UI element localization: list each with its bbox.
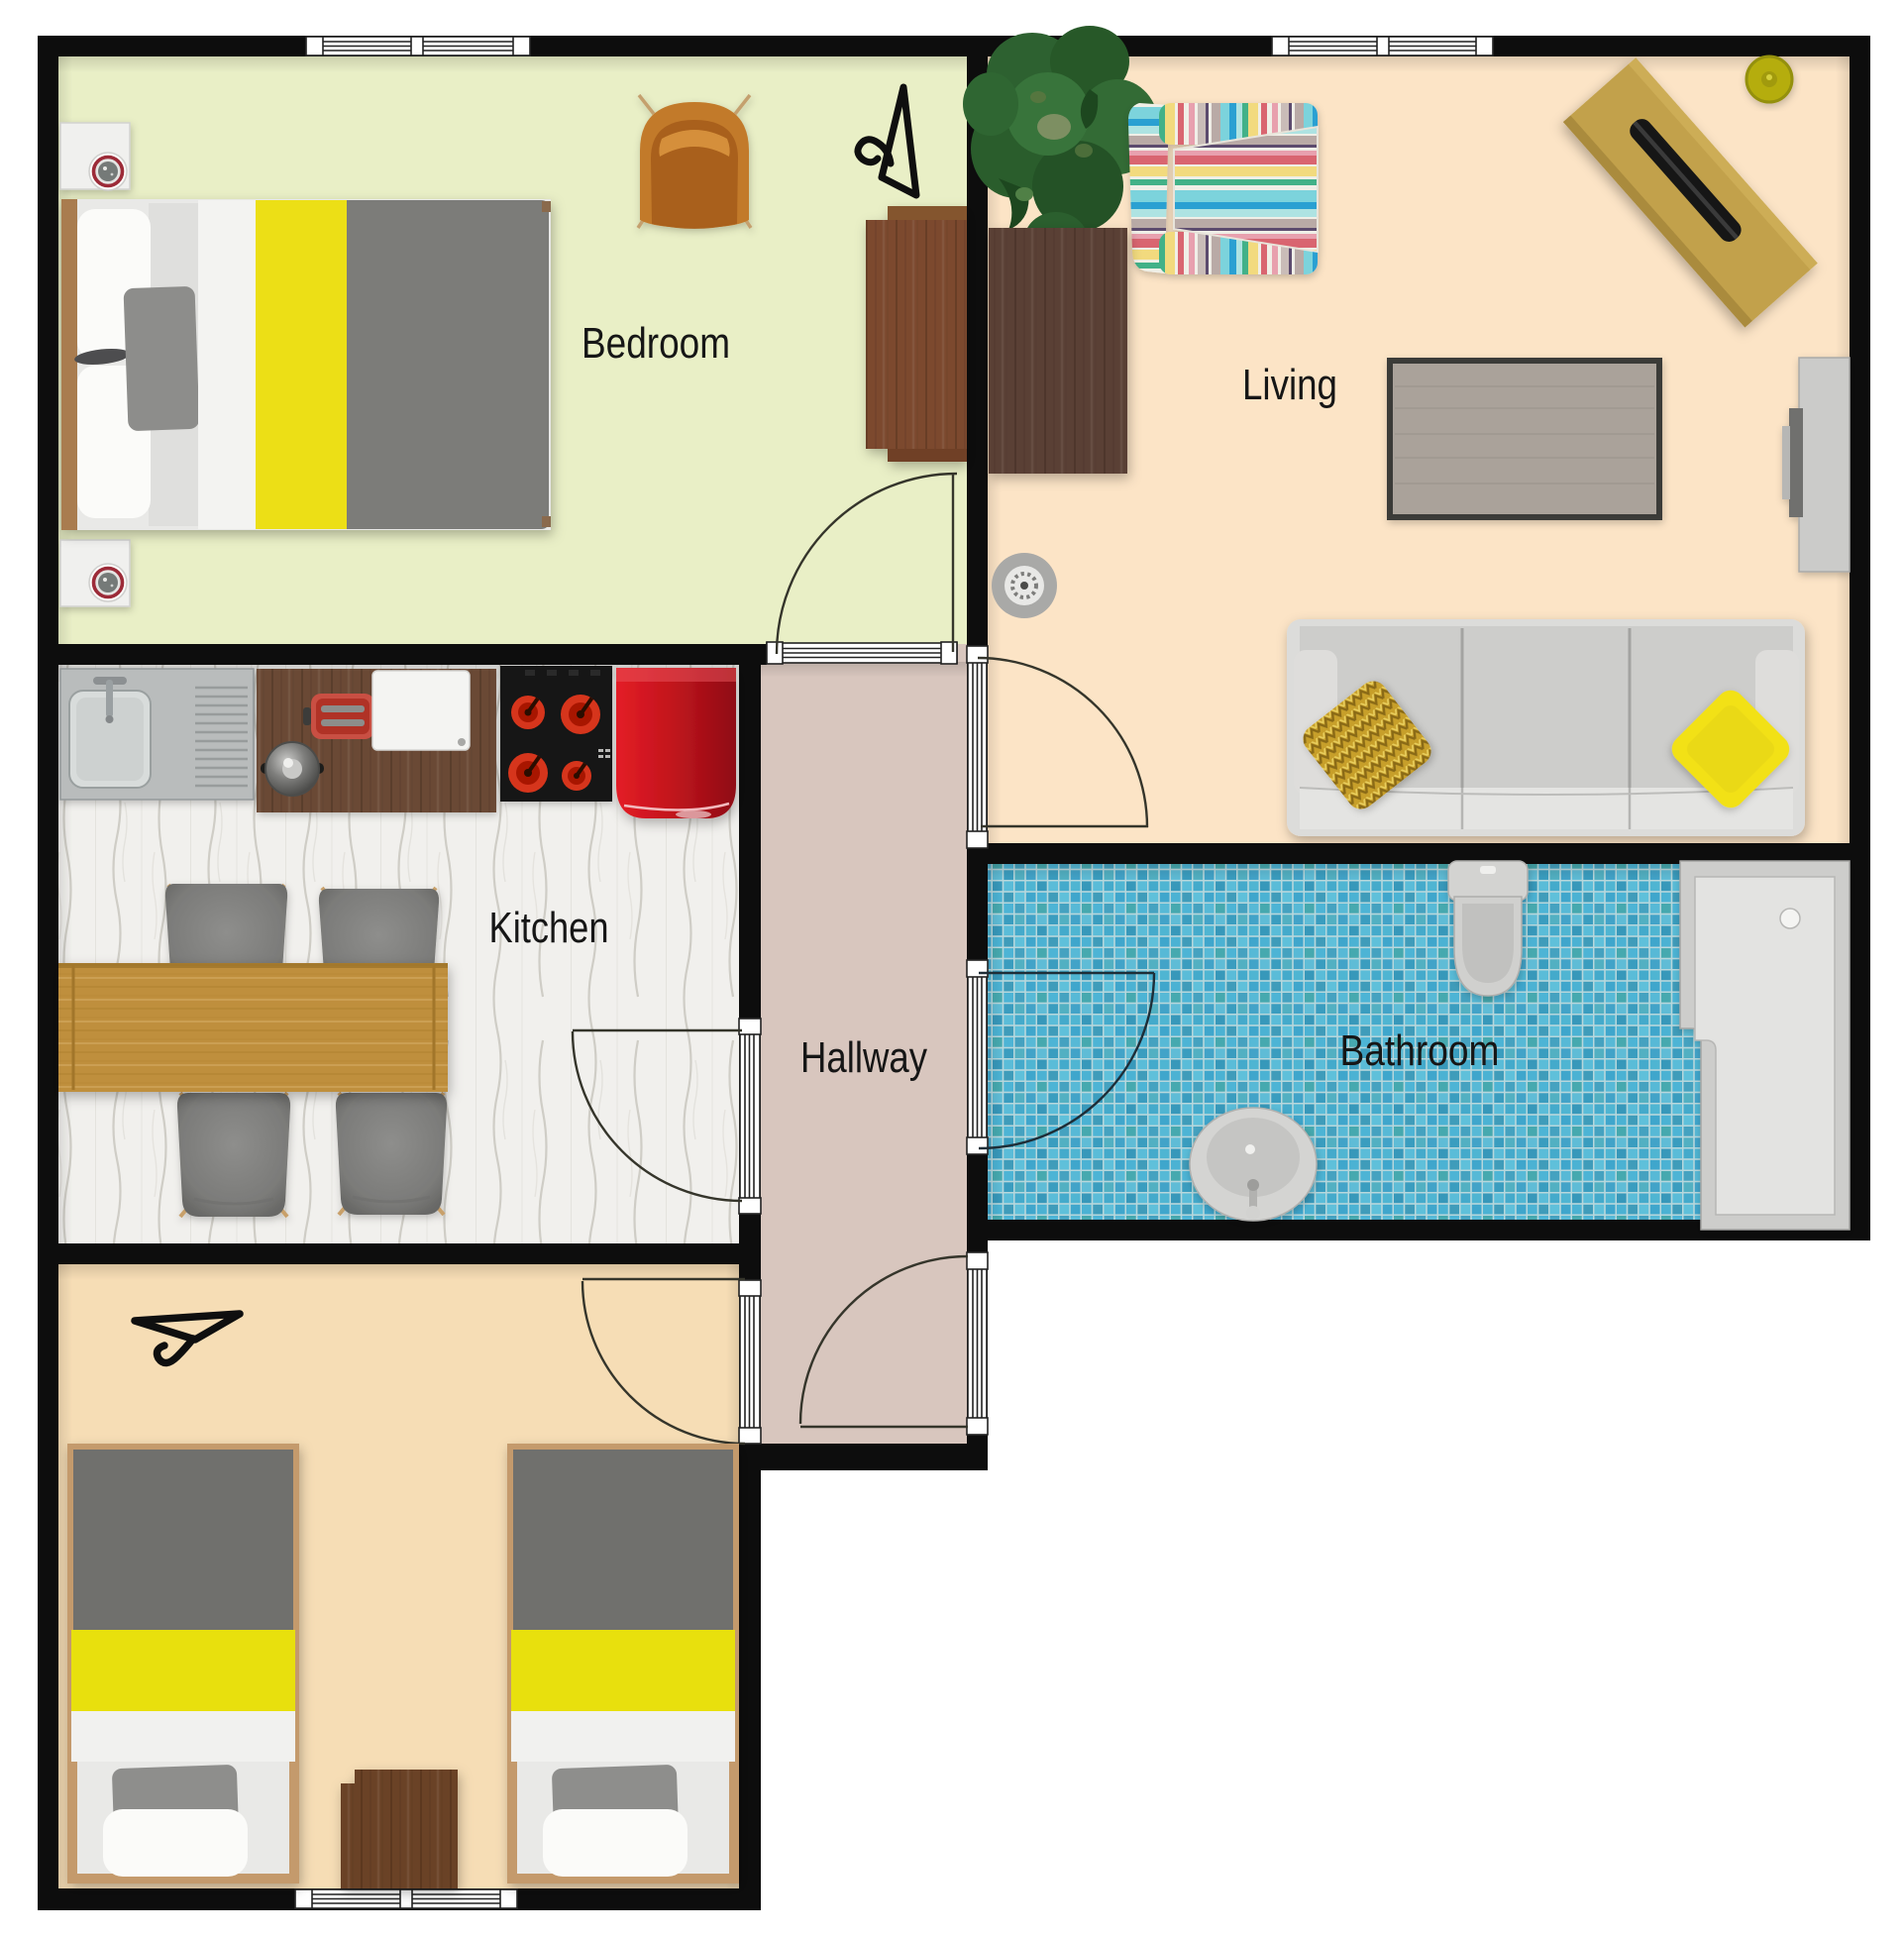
svg-text:Kitchen: Kitchen xyxy=(489,904,609,952)
svg-text:Bathroom: Bathroom xyxy=(1340,1026,1500,1075)
svg-text:Bedroom: Bedroom xyxy=(582,319,730,368)
svg-text:Hallway: Hallway xyxy=(800,1033,927,1082)
svg-text:Living: Living xyxy=(1242,361,1337,409)
